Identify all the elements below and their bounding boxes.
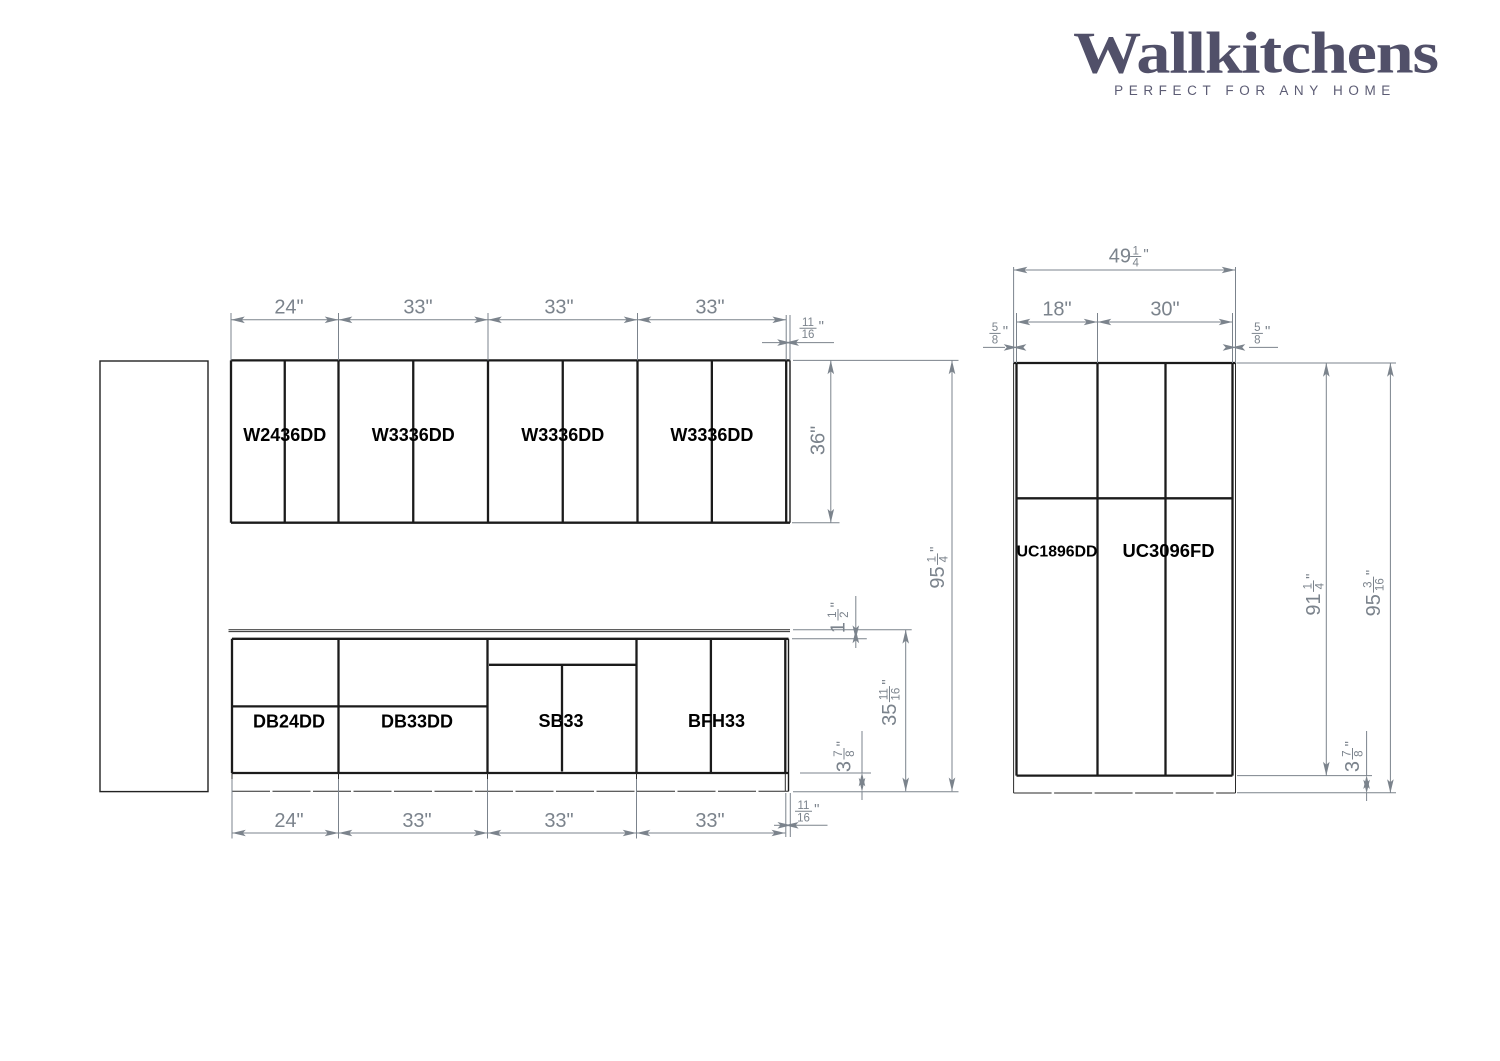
svg-text:3: 3 xyxy=(1342,761,1364,772)
svg-text:16: 16 xyxy=(797,812,810,824)
svg-text:49: 49 xyxy=(1109,246,1131,268)
svg-text:2: 2 xyxy=(839,611,851,617)
svg-text:1: 1 xyxy=(828,622,850,633)
svg-text:8: 8 xyxy=(845,750,857,756)
svg-text:8: 8 xyxy=(1254,334,1260,346)
svg-text:18": 18" xyxy=(1042,298,1071,320)
svg-text:3: 3 xyxy=(834,761,856,772)
svg-text:33": 33" xyxy=(695,296,724,318)
svg-text:": " xyxy=(819,318,824,335)
svg-text:": " xyxy=(1265,323,1270,340)
svg-text:16: 16 xyxy=(1375,578,1387,591)
svg-text:": " xyxy=(828,602,845,607)
svg-text:30": 30" xyxy=(1150,298,1179,320)
svg-text:": " xyxy=(879,679,896,684)
svg-text:Wallkitchens: Wallkitchens xyxy=(1073,20,1438,86)
svg-text:7: 7 xyxy=(833,750,845,756)
svg-text:1: 1 xyxy=(1302,583,1314,589)
svg-text:33": 33" xyxy=(403,296,432,318)
svg-text:1: 1 xyxy=(926,556,938,562)
svg-text:": " xyxy=(1342,741,1359,746)
svg-text:33": 33" xyxy=(402,810,431,832)
svg-text:5: 5 xyxy=(992,322,998,334)
svg-text:PERFECT FOR ANY HOME: PERFECT FOR ANY HOME xyxy=(1114,83,1396,98)
svg-text:11: 11 xyxy=(798,800,810,812)
svg-text:SB33: SB33 xyxy=(538,711,583,731)
svg-text:16: 16 xyxy=(802,329,815,341)
svg-text:W2436DD: W2436DD xyxy=(243,425,326,445)
svg-text:24": 24" xyxy=(274,810,303,832)
svg-text:1: 1 xyxy=(827,611,839,617)
svg-text:33": 33" xyxy=(695,810,724,832)
svg-text:W3336DD: W3336DD xyxy=(372,425,455,445)
svg-text:91: 91 xyxy=(1303,593,1325,615)
svg-text:": " xyxy=(1363,570,1380,575)
svg-text:16: 16 xyxy=(891,688,903,701)
svg-text:3: 3 xyxy=(1362,581,1374,587)
svg-text:24": 24" xyxy=(274,296,303,318)
svg-text:5: 5 xyxy=(1254,322,1260,334)
svg-text:95: 95 xyxy=(1363,594,1385,616)
svg-text:BFH33: BFH33 xyxy=(688,711,745,731)
svg-text:11: 11 xyxy=(802,317,814,329)
svg-text:33": 33" xyxy=(544,296,573,318)
svg-text:36": 36" xyxy=(808,426,830,455)
svg-text:7: 7 xyxy=(1341,750,1353,756)
svg-text:35: 35 xyxy=(879,704,901,726)
svg-text:4: 4 xyxy=(1315,582,1327,589)
svg-text:": " xyxy=(1003,323,1008,340)
svg-text:33": 33" xyxy=(544,810,573,832)
svg-text:4: 4 xyxy=(939,555,951,562)
svg-text:": " xyxy=(814,801,819,818)
svg-text:W3336DD: W3336DD xyxy=(521,425,604,445)
svg-text:DB33DD: DB33DD xyxy=(381,712,453,732)
svg-text:": " xyxy=(927,547,944,552)
svg-text:8: 8 xyxy=(1354,750,1366,756)
svg-text:": " xyxy=(1143,246,1148,263)
svg-text:": " xyxy=(1303,574,1320,579)
svg-text:95: 95 xyxy=(927,566,949,588)
svg-text:1: 1 xyxy=(1132,245,1138,257)
svg-text:UC1896DD: UC1896DD xyxy=(1017,544,1098,561)
svg-text:4: 4 xyxy=(1132,258,1139,270)
svg-text:W3336DD: W3336DD xyxy=(670,425,753,445)
svg-text:DB24DD: DB24DD xyxy=(253,712,325,732)
svg-text:11: 11 xyxy=(878,688,890,700)
svg-text:8: 8 xyxy=(992,334,998,346)
svg-text:": " xyxy=(834,741,851,746)
svg-text:UC3096FD: UC3096FD xyxy=(1123,540,1215,561)
